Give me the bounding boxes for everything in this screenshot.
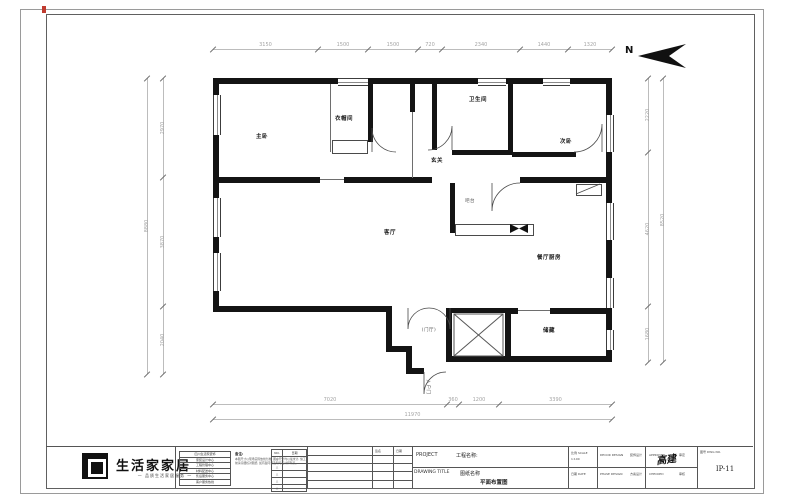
scale-value: 1:100 (571, 457, 580, 461)
sign-table-line (372, 447, 373, 488)
revision-triangle-icon: △ (272, 464, 283, 470)
dim-value: 1680 (645, 322, 651, 346)
checked-label-zh: 审核 (679, 472, 685, 476)
revision-row: △ (272, 464, 306, 471)
dim-value: 1500 (331, 42, 355, 48)
dim-value: 1440 (532, 42, 556, 48)
revision-row: △ (272, 457, 306, 464)
dim-tick (160, 371, 166, 377)
sign-table-header: 签名 (375, 449, 381, 453)
drawing-sheet: 主卧衣帽间卫生间次卧玄关吧台客厅餐厅厨房(门厅)储藏入户门 N 31501500… (0, 0, 800, 500)
revision-triangle-icon: △ (272, 485, 283, 491)
approver-signature: 高建 (655, 450, 677, 468)
sign-table-line (307, 471, 412, 472)
revision-triangle-icon: △ (272, 457, 283, 463)
revision-triangle-icon: △ (272, 471, 283, 477)
revision-triangle-icon: △ (272, 478, 283, 484)
dim-value: 3870 (160, 230, 166, 254)
dim-tick (609, 46, 615, 52)
rev-col-date: 日期 (283, 450, 306, 456)
approved-label-zh: 审定 (679, 453, 685, 457)
dim-tick (609, 416, 615, 422)
title-block: 生活家家居 — 品质生活家居服务 — 四川生活家装饰家装设计中心工程管理中心材料… (46, 446, 753, 488)
project-label-zh: 工程名称: (456, 452, 478, 459)
dim-value: 2220 (645, 103, 651, 127)
drawing-no-value: IP-11 (697, 465, 753, 473)
sign-table-line (307, 455, 412, 456)
dim-tick (645, 359, 651, 365)
dim-value: 11970 (401, 412, 425, 418)
drawing-title: 平面布置图 (480, 478, 508, 486)
phase-label-zh: 方案设计 (630, 472, 642, 476)
dim-value: 8880 (144, 214, 150, 238)
project-label-en: PROJECT (416, 452, 438, 458)
drawing-title-label-zh: 图纸名称 (460, 470, 480, 477)
sign-table-line (393, 447, 394, 488)
dim-value: 360 (441, 397, 465, 403)
signature-table: 签名日期 (307, 447, 412, 488)
phase-label-en: PHASE DESIGN (600, 472, 622, 476)
sign-table-line (307, 463, 412, 464)
dim-value: 4620 (645, 217, 651, 241)
dim-bottom-total (213, 419, 612, 420)
drawing-no-label: 图号 DWG NO. (700, 450, 721, 454)
drawing-title-label-en: DRAWING TITLE (414, 470, 449, 475)
dim-bottom (213, 404, 612, 405)
dim-value: 2970 (160, 116, 166, 140)
dim-value: 2040 (160, 328, 166, 352)
revision-table: NO.日期△△△△△ (271, 449, 307, 492)
dim-top (213, 49, 612, 50)
revision-row: △ (272, 485, 306, 491)
dim-value: 3150 (254, 42, 278, 48)
design-label-en: DECOR DESIGN (600, 453, 623, 457)
info-table-row: 客户服务热线 (179, 479, 231, 486)
revision-row: △ (272, 478, 306, 485)
rev-col-no: NO. (272, 450, 283, 456)
dim-value: 720 (418, 42, 442, 48)
dim-value: 2340 (469, 42, 493, 48)
checked-label-en: CHECKED (649, 472, 664, 476)
dim-value: 7020 (318, 397, 342, 403)
sign-table-header: 日期 (396, 449, 402, 453)
dim-tick (609, 401, 615, 407)
sign-table-line (307, 480, 412, 481)
dim-value: 8520 (660, 208, 666, 232)
company-info-table: 四川生活家装饰家装设计中心工程管理中心材料配送中心售后服务中心客户服务热线 (179, 451, 231, 485)
design-label-zh: 装饰设计 (630, 453, 642, 457)
date-label: 日期 DATE (571, 472, 586, 476)
dim-value: 3390 (544, 397, 568, 403)
tb-divider (412, 467, 697, 468)
dim-value: 1500 (381, 42, 405, 48)
dimension-layer: 3150150015007202340144013207020360120033… (0, 0, 800, 500)
dim-tick (660, 359, 666, 365)
company-logo-icon (82, 453, 108, 479)
dim-value: 1200 (467, 397, 491, 403)
scale-label: 比例 SCALE (571, 451, 588, 455)
revision-row: △ (272, 471, 306, 478)
dim-tick (144, 371, 150, 377)
dim-value: 1320 (578, 42, 602, 48)
